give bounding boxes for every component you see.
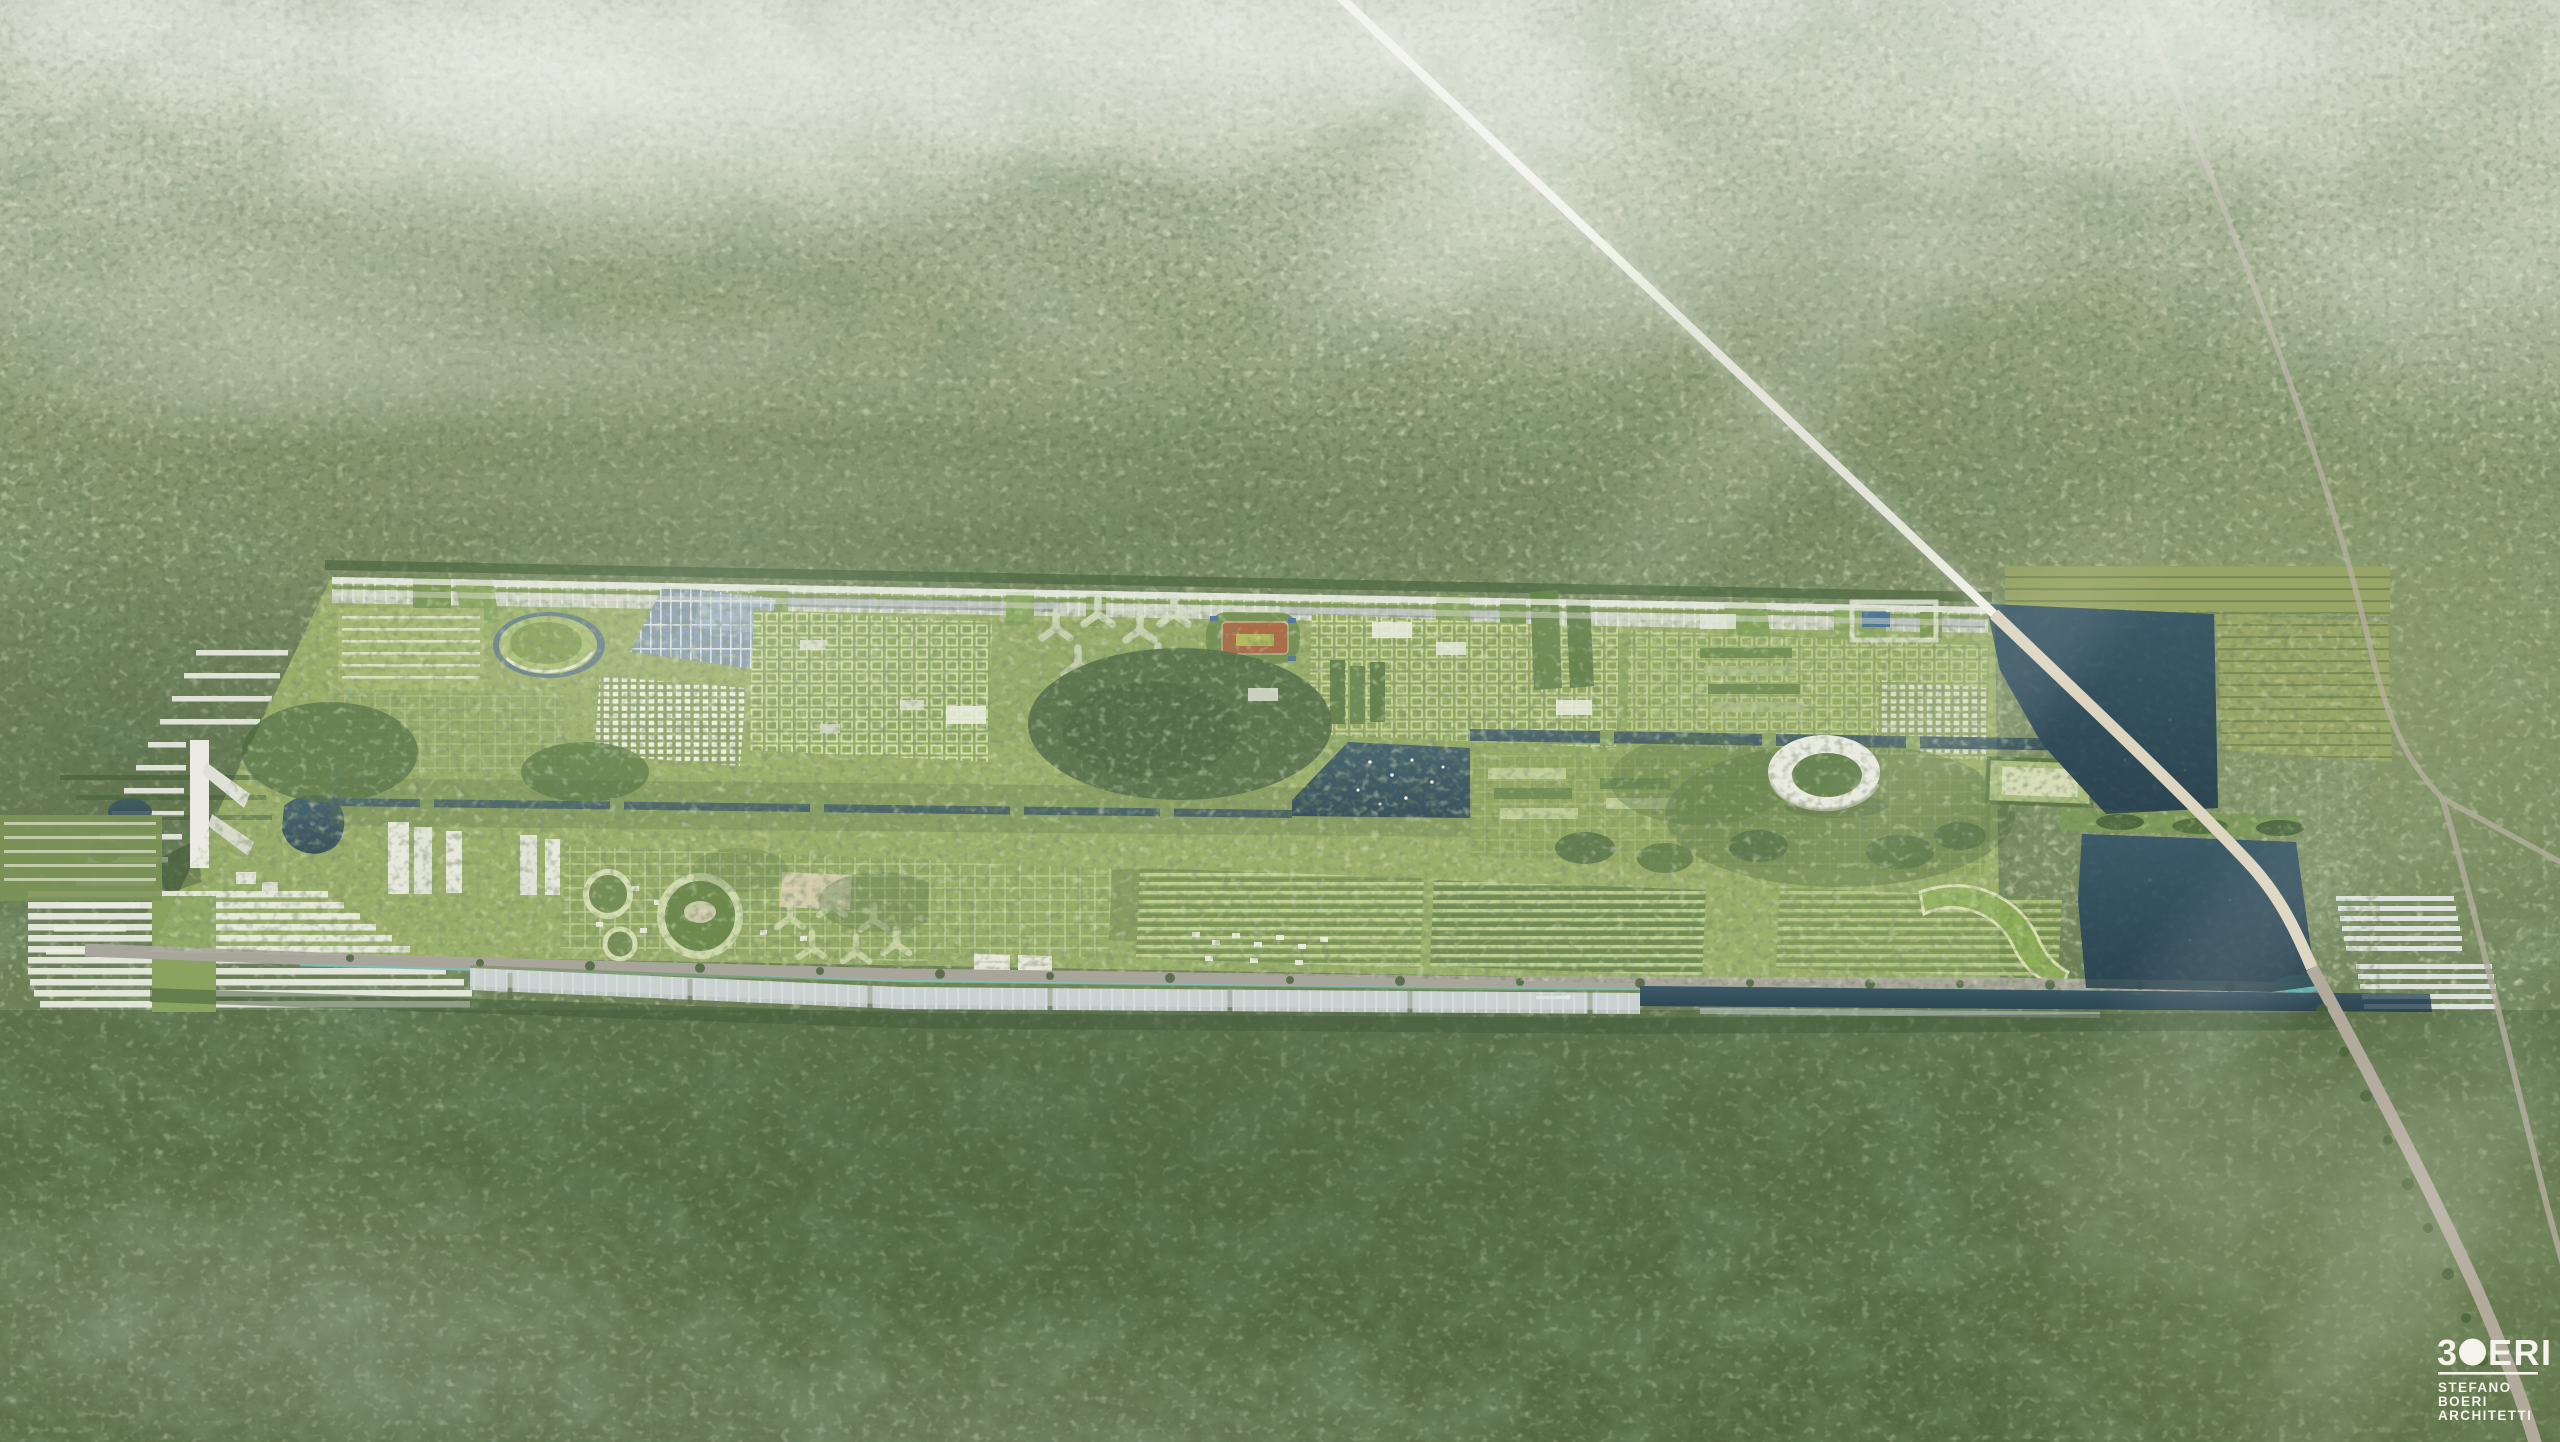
svg-text:3OERI: 3OERI — [2437, 1332, 2553, 1373]
svg-text:BOERI: BOERI — [2438, 1394, 2488, 1409]
svg-text:ARCHITETTI: ARCHITETTI — [2438, 1408, 2532, 1423]
svg-text:STEFANO: STEFANO — [2438, 1380, 2512, 1395]
